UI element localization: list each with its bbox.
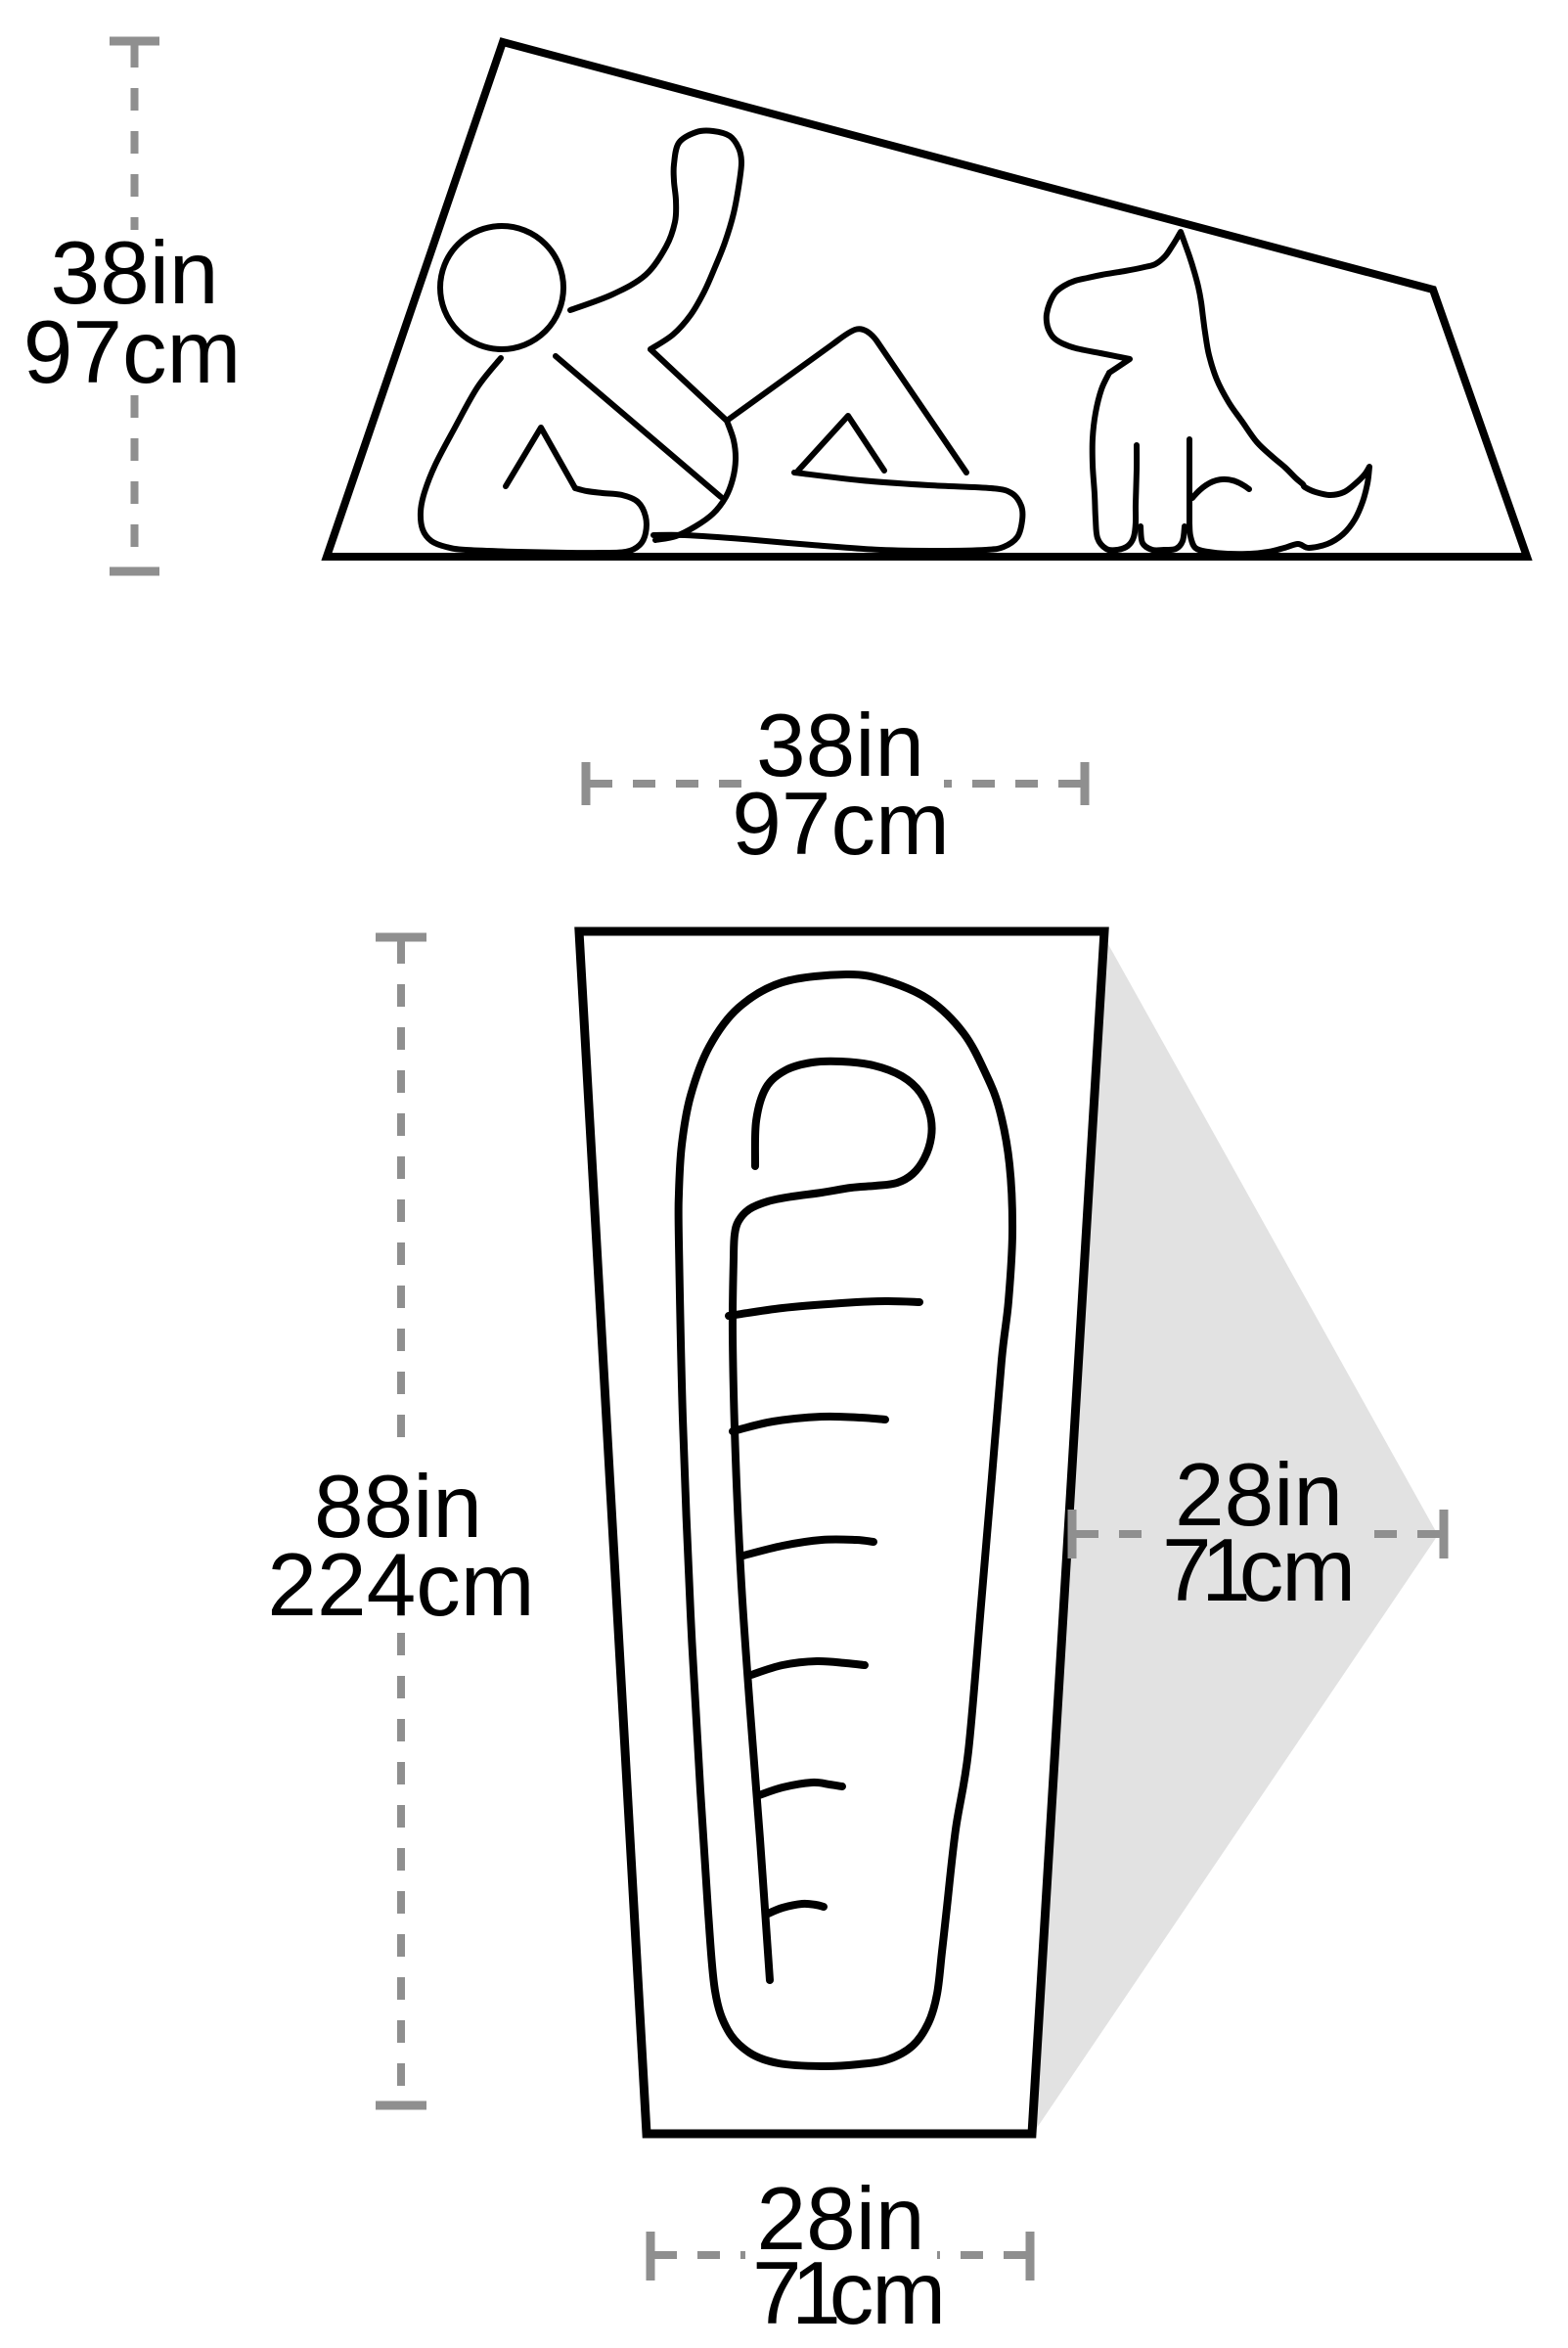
svg-text:97cm: 97cm: [732, 775, 950, 874]
svg-text:71cm: 71cm: [752, 2244, 946, 2343]
svg-text:71cm: 71cm: [1162, 1521, 1356, 1620]
svg-text:97cm: 97cm: [23, 303, 242, 402]
svg-text:224cm: 224cm: [267, 1536, 534, 1635]
